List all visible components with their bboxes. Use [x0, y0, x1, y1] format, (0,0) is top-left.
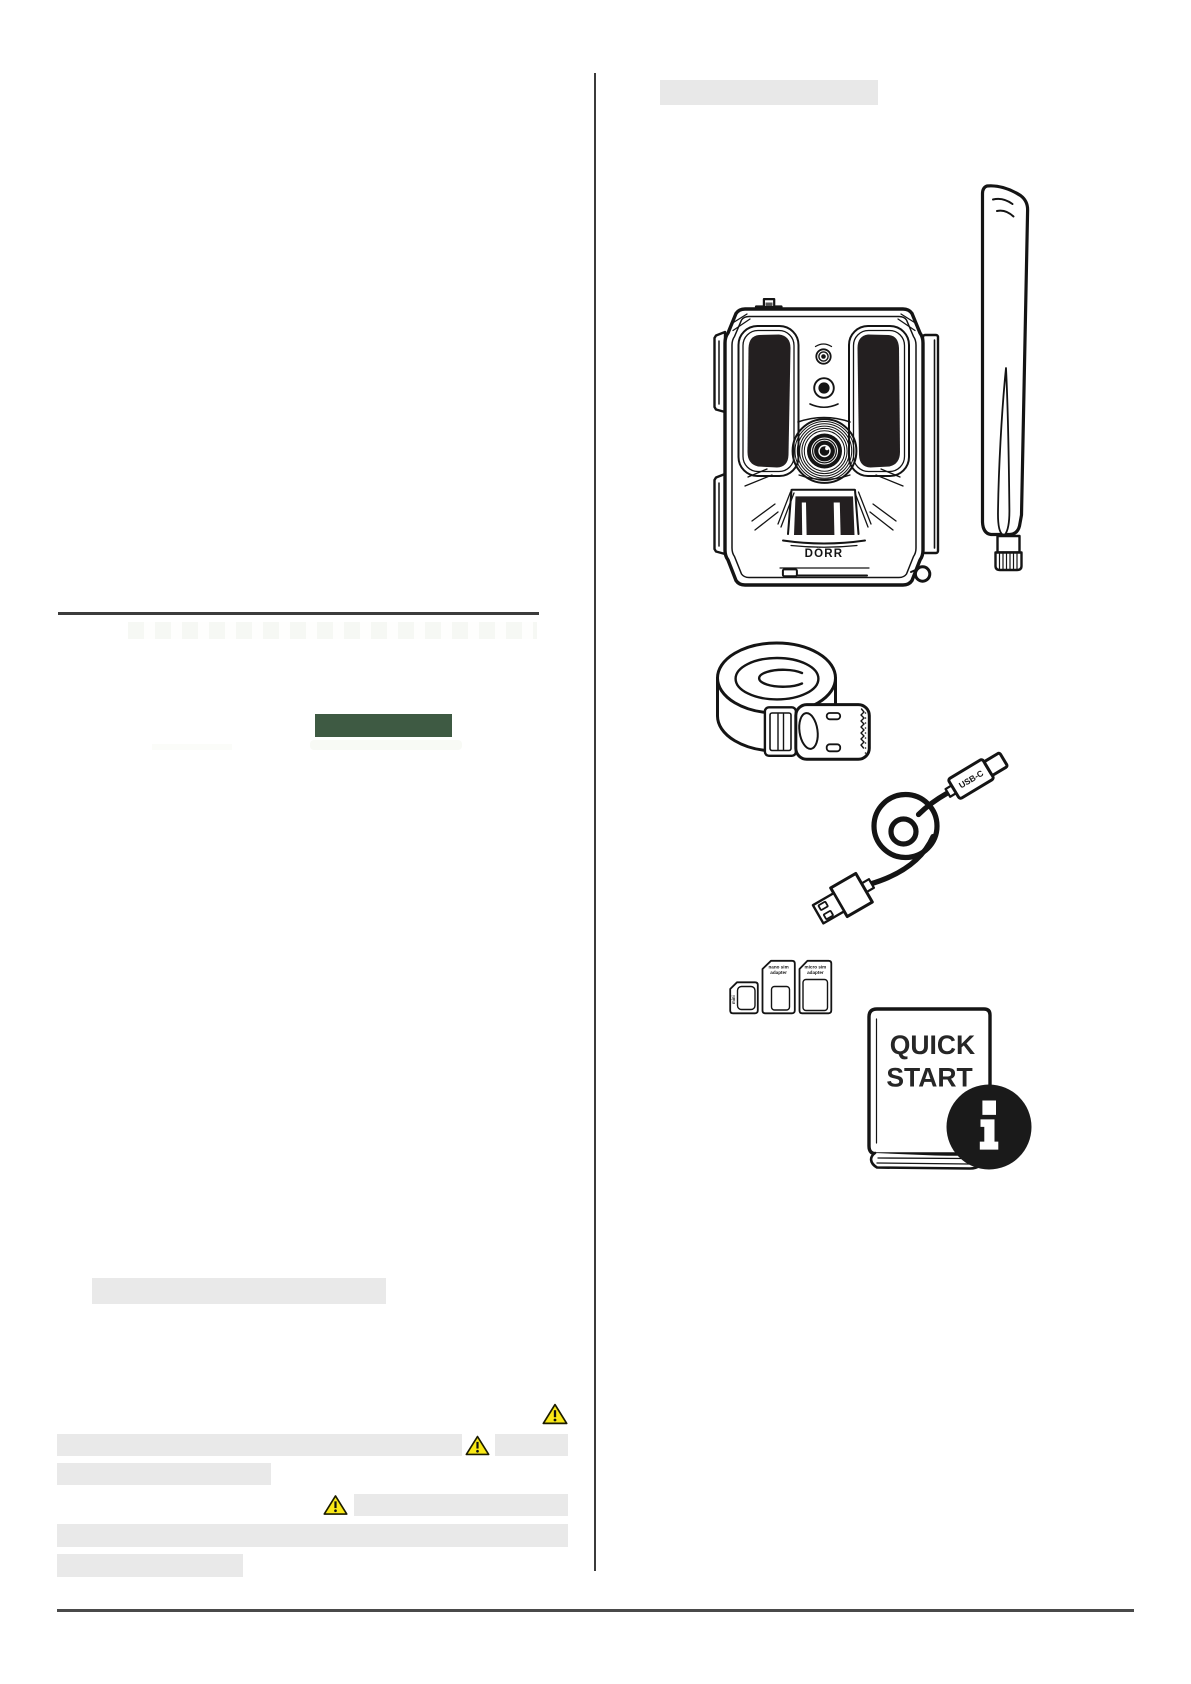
svg-text:START: START — [886, 1062, 972, 1092]
svg-text:nano sim: nano sim — [769, 965, 789, 970]
svg-text:micro sim: micro sim — [805, 965, 827, 970]
svg-text:adapter: adapter — [770, 970, 787, 975]
svg-text:mini: mini — [731, 995, 736, 1004]
svg-text:QUICK: QUICK — [890, 1030, 975, 1060]
svg-text:DÖRR: DÖRR — [805, 547, 844, 560]
svg-text:adapter: adapter — [807, 970, 824, 975]
